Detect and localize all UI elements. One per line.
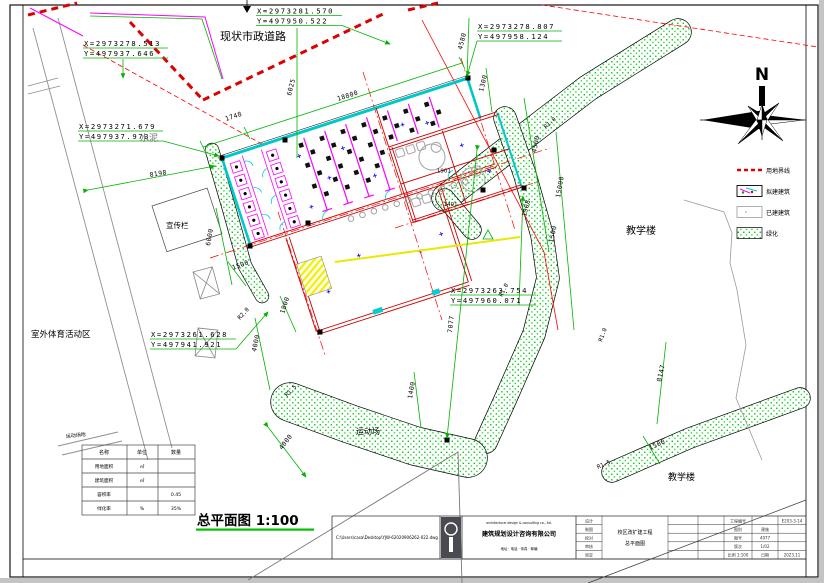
dim: 4580 [456,32,468,51]
radius-label: R2.0 [237,307,251,322]
dim: 6025 [285,78,297,97]
coord-x: X=2973278.807 [478,22,555,31]
dim: 8198 [149,168,167,179]
canvas-edge-bottom [0,578,824,583]
dim: 1748 [224,110,243,123]
coord-y: Y=497960.071 [451,296,522,305]
grid-cell: 制图 [585,526,593,532]
coord-y: Y=497937.646 [84,49,155,58]
grid-cell: 日期 [761,551,769,557]
title-block: C:\Users\casa\Desktop\YJW-62020906262-02… [332,516,806,559]
file-path-text: C:\Users\casa\Desktop\YJW-62020906262-02… [336,535,438,540]
north-bar [759,86,765,106]
grid-cell: 图别 [734,526,742,532]
company-cn-text: 建筑规划设计咨询有限公司 [481,530,556,538]
cement-label: 水泥 [140,132,158,144]
grid-cell: E203-3-14 [782,519,803,524]
dim: 1800 [278,296,291,315]
dim: 18800 [336,89,359,103]
coord-y: Y=497941.921 [151,340,222,349]
coord-x: X=2973271.679 [79,122,156,131]
grid-cell: 图号 [734,535,742,541]
triangle-mark [483,230,493,239]
grid-cell: 建施 [761,526,769,532]
table-header: 数量 [171,449,181,456]
table-cell: 建筑面积 [95,477,114,484]
table-cell: 绿化率 [97,505,111,512]
outdoor-area-label: 室外体育活动区 [31,329,91,340]
dim: 4000 [277,433,294,452]
drawing-name-text: 总平面图 [625,540,645,547]
table-header: 单位 [137,449,147,456]
drawing-canvas: 1901 1401 X=2973278.513 Y=497937.646 X=2… [0,0,824,583]
grid-cell: 比例 1:100 [728,551,749,557]
table-cell: 35% [171,506,182,512]
field-small-label: 运动场地 [65,431,86,440]
title-grid-cells: 设计 工程编号 E203-3-14 制图 图别 建施 校对 图号 4977 审核… [585,518,803,558]
coord-x: X=2973281.570 [257,7,334,16]
coord-y: Y=497958.124 [478,32,549,41]
dim: 1400 [406,381,417,400]
table-cell: % [140,506,145,512]
scale-title-text: 总平面图 1:100 [197,512,299,529]
canvas-edge-right [819,0,824,583]
coord-x: X=2973278.513 [84,39,161,48]
dim: 8147 [655,364,667,383]
green-planting-bands [212,32,800,472]
grid-cell: 设计 [585,518,593,524]
room-label: 1401 [444,202,458,208]
legend-green-symbol [737,228,762,239]
stairs-hatch [296,256,331,296]
dim: 4000 [250,334,261,353]
dim: 15000 [554,176,566,199]
grid-cell: 4977 [760,536,771,541]
teaching-building-label2: 教学楼 [668,471,695,483]
top-section-arrow [243,0,251,13]
field-label: 运动场 [356,426,380,436]
table-cell: 用地面积 [95,463,114,470]
courtyard-opening2 [431,288,440,295]
teaching-building-label: 教学楼 [626,224,656,237]
company-en-text: architectural design & consulting co., l… [486,521,552,525]
legend-existing-symbol [737,207,762,218]
coord-x: X=2973261.628 [151,330,228,339]
drawing-frame [10,5,818,577]
grid-cell: 审定 [585,551,593,557]
legend-label: 绿化 [766,230,778,238]
indicator-table: 名称 单位 数量 用地面积 ㎡ 建筑面积 ㎡ 容积率 0.45 绿化率 % 35… [82,445,195,515]
coord-x: X=2973263.754 [451,286,528,295]
legend: 用地界线 拟建建筑 已建建筑 绿化 [737,167,790,239]
grid-cell: 版次 [734,543,742,549]
company-info-text: 地址 · 电话 · 传真 · 邮编 [501,546,538,551]
legend-label: 已建建筑 [766,209,790,217]
dim: 7077 [446,315,456,333]
legend-label: 用地界线 [766,167,790,175]
table-cell: ㎡ [140,477,145,484]
project-name-text: 校区改扩建工程 [617,529,652,536]
grid-cell: 审核 [585,543,593,549]
coord-y: Y=497950.522 [257,17,328,26]
cad-site-plan: 1901 1401 X=2973278.513 Y=497937.646 X=2… [0,0,824,583]
north-wind-rose: N [700,65,806,144]
table-header: 名称 [99,449,109,456]
legend-proposed-symbol [737,186,762,197]
legend-label: 拟建建筑 [766,188,790,196]
table-cell: 0.45 [171,492,181,498]
board-label: 宣传栏 [166,220,189,230]
room-label: 1901 [437,168,451,174]
north-letter: N [755,65,769,85]
radius-label: R1.0 [598,327,609,343]
grid-cell: 1/02 [761,544,770,549]
grid-cell: 校对 [585,535,593,541]
dim: 1300 [477,74,489,93]
table-cell: ㎡ [140,463,145,470]
drawing-title: 总平面图 1:100 [196,512,314,531]
grid-cell: 工程编号 [730,518,746,524]
yellow-path-line [335,237,520,262]
grid-cell: 2023.11 [784,552,801,557]
dim: 6000 [204,228,215,247]
title-underline [196,529,314,531]
existing-site-lines [28,18,806,583]
road-label: 现状市政道路 [220,29,286,43]
table-cell: 容积率 [97,491,111,498]
